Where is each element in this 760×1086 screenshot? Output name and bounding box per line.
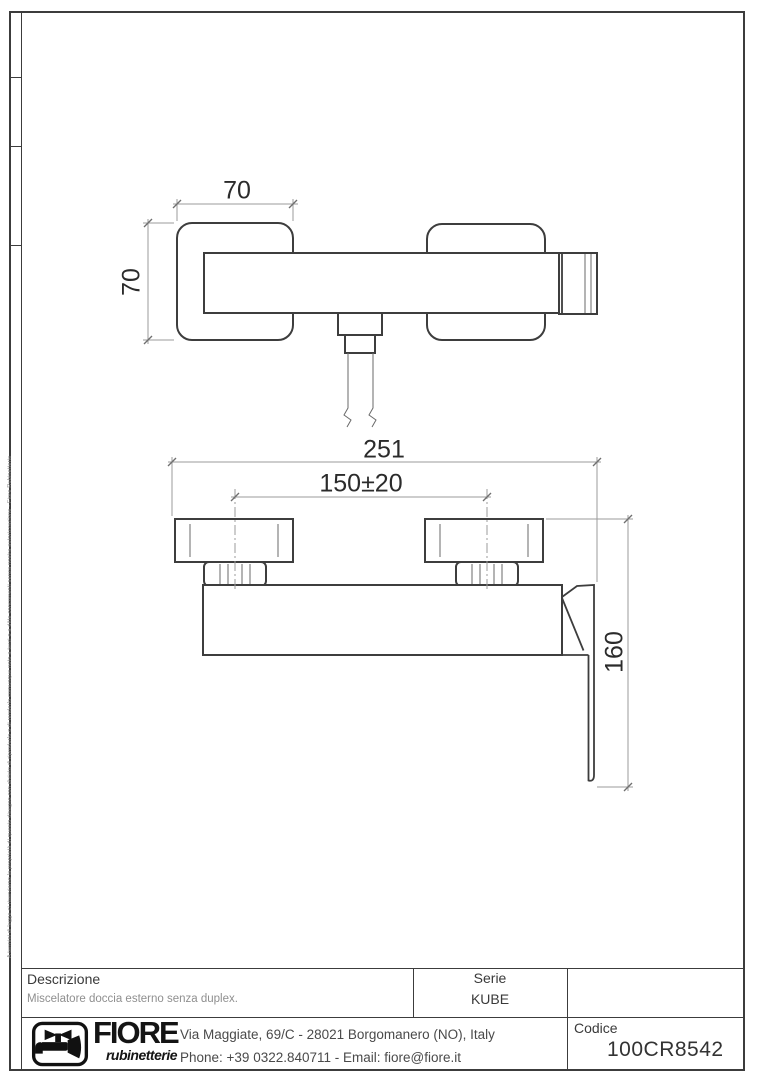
company-tagline: rubinetterie — [93, 1047, 177, 1063]
titleblock-divider — [567, 968, 568, 1017]
series-value: KUBE — [471, 991, 509, 1007]
company-contact: Phone: +39 0322.840711 - Email: fiore@fi… — [180, 1050, 461, 1065]
fiore-faucet-logo-icon — [31, 1021, 89, 1067]
top-view — [177, 223, 597, 427]
titleblock-top-line — [21, 968, 745, 969]
dim-overall-width-label: 251 — [363, 436, 405, 465]
series-label: Serie — [474, 970, 507, 986]
titleblock-divider — [567, 1017, 568, 1071]
dim-height-label: 160 — [601, 631, 630, 673]
code-label: Codice — [574, 1020, 618, 1036]
dim-plate-height-label: 70 — [118, 268, 147, 296]
dim-centers-label: 150±20 — [319, 470, 402, 499]
company-address: Via Maggiate, 69/C - 28021 Borgomanero (… — [180, 1027, 495, 1042]
titleblock-divider — [413, 968, 414, 1017]
front-view — [175, 489, 594, 781]
datasheet-page: A termini di legge ci riserviamo la prop… — [0, 0, 760, 1086]
description-label: Descrizione — [27, 971, 100, 987]
technical-drawing — [0, 0, 760, 1086]
company-name: FIORE — [93, 1015, 178, 1051]
fiore-logo: FIORE rubinetterie — [31, 1021, 176, 1067]
code-value: 100CR8542 — [607, 1038, 724, 1062]
dim-plate-width-label: 70 — [223, 177, 251, 206]
description-value: Miscelatore doccia esterno senza duplex. — [27, 993, 238, 1005]
